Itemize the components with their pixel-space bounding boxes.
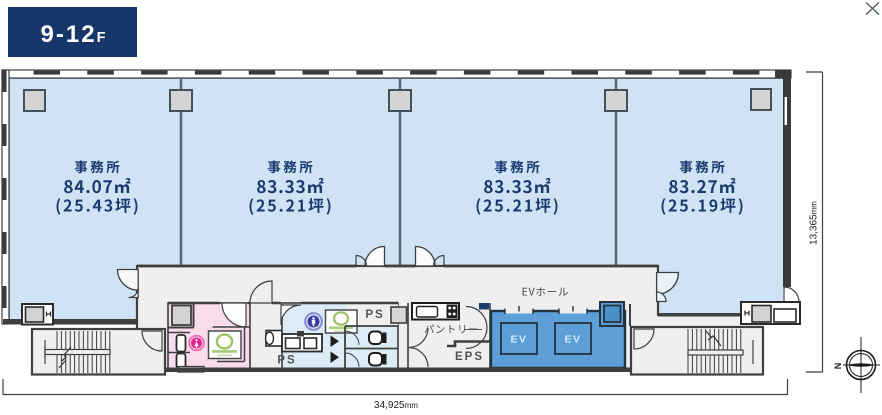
svg-text:EV: EV <box>564 334 581 346</box>
svg-text:EPS: EPS <box>455 351 484 363</box>
svg-text:34,925mm: 34,925mm <box>374 400 418 411</box>
svg-text:EV: EV <box>510 334 527 346</box>
svg-text:N: N <box>833 363 843 370</box>
svg-text:PS: PS <box>365 309 384 321</box>
svg-text:PS: PS <box>277 355 296 367</box>
svg-text:13,365mm: 13,365mm <box>809 201 820 245</box>
